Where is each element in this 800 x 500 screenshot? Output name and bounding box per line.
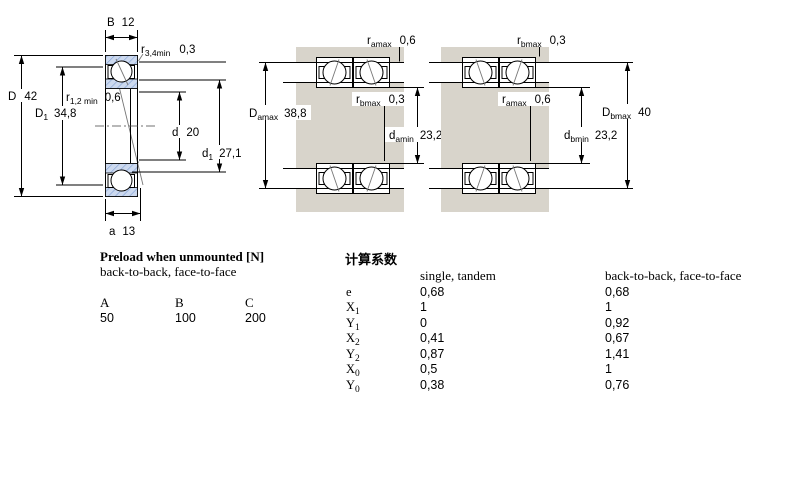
factor-value: 1 <box>605 362 612 376</box>
factor-value: 0,76 <box>605 378 629 392</box>
factor-value: 0,5 <box>420 362 437 376</box>
factors-col-single-tandem: single, tandem <box>420 268 496 284</box>
factor-value: 0,41 <box>420 331 444 345</box>
svg-text:d127,1: d127,1 <box>202 148 242 162</box>
svg-text:d20: d20 <box>172 127 199 139</box>
factor-value: 0,68 <box>605 285 629 299</box>
label-r12min: r1,2 min0,6 <box>66 92 121 106</box>
bearing-drawings: B12 D42 D134,8 <box>0 0 800 245</box>
dim-Dbmax: Dbmax40 <box>598 63 658 189</box>
ball-bottom <box>111 170 132 191</box>
factor-value: 1 <box>420 300 427 314</box>
dim-width-B: B12 <box>106 17 138 52</box>
factors-title: 计算系数 <box>345 249 397 268</box>
factors-col-back-to-back: back-to-back, face-to-face <box>605 268 741 284</box>
svg-text:D134,8: D134,8 <box>35 108 76 122</box>
dim-outer-diameter-D: D42 <box>4 56 103 197</box>
paired-arrangement-b: dbmin23,2 Dbmax40 rbmax0,3 ramax0,6 <box>429 33 658 212</box>
single-bearing-cross-section: B12 D42 D134,8 <box>4 17 242 238</box>
factor-label-X2: X2 <box>346 331 360 348</box>
svg-text:r3,4min0,3: r3,4min0,3 <box>141 44 195 58</box>
factor-value: 0,38 <box>420 378 444 392</box>
factor-value: 0 <box>420 316 427 330</box>
preload-header-B: B <box>175 295 184 311</box>
preload-value-A: 50 <box>100 311 114 325</box>
svg-text:r1,2 min0,6: r1,2 min0,6 <box>66 92 121 106</box>
factor-label-X0: X0 <box>346 362 360 379</box>
factor-value: 1,41 <box>605 347 629 361</box>
preload-value-B: 100 <box>175 311 196 325</box>
bearing-datasheet-page: B12 D42 D134,8 <box>0 0 800 500</box>
label-r34min: r3,4min0,3 <box>139 44 227 62</box>
preload-header-C: C <box>245 295 254 311</box>
preload-header-A: A <box>100 295 109 311</box>
preload-title: Preload when unmounted [N] <box>100 249 264 265</box>
factor-value: 0,87 <box>420 347 444 361</box>
preload-subtitle: back-to-back, face-to-face <box>100 264 236 280</box>
factor-label-Y0: Y0 <box>346 378 360 395</box>
factor-value: 0,92 <box>605 316 629 330</box>
preload-value-C: 200 <box>245 311 266 325</box>
paired-arrangement-a: Damax38,8 damin23,2 ramax0,6 rbmax0,3 <box>245 33 449 212</box>
factor-value: 0,67 <box>605 331 629 345</box>
factor-label-X1: X1 <box>346 300 360 317</box>
factor-value: 1 <box>605 300 612 314</box>
svg-text:a13: a13 <box>109 226 135 238</box>
svg-text:B12: B12 <box>107 17 134 29</box>
factor-value: 0,68 <box>420 285 444 299</box>
dim-shoulder-diameter-D1: D134,8 <box>32 67 103 185</box>
